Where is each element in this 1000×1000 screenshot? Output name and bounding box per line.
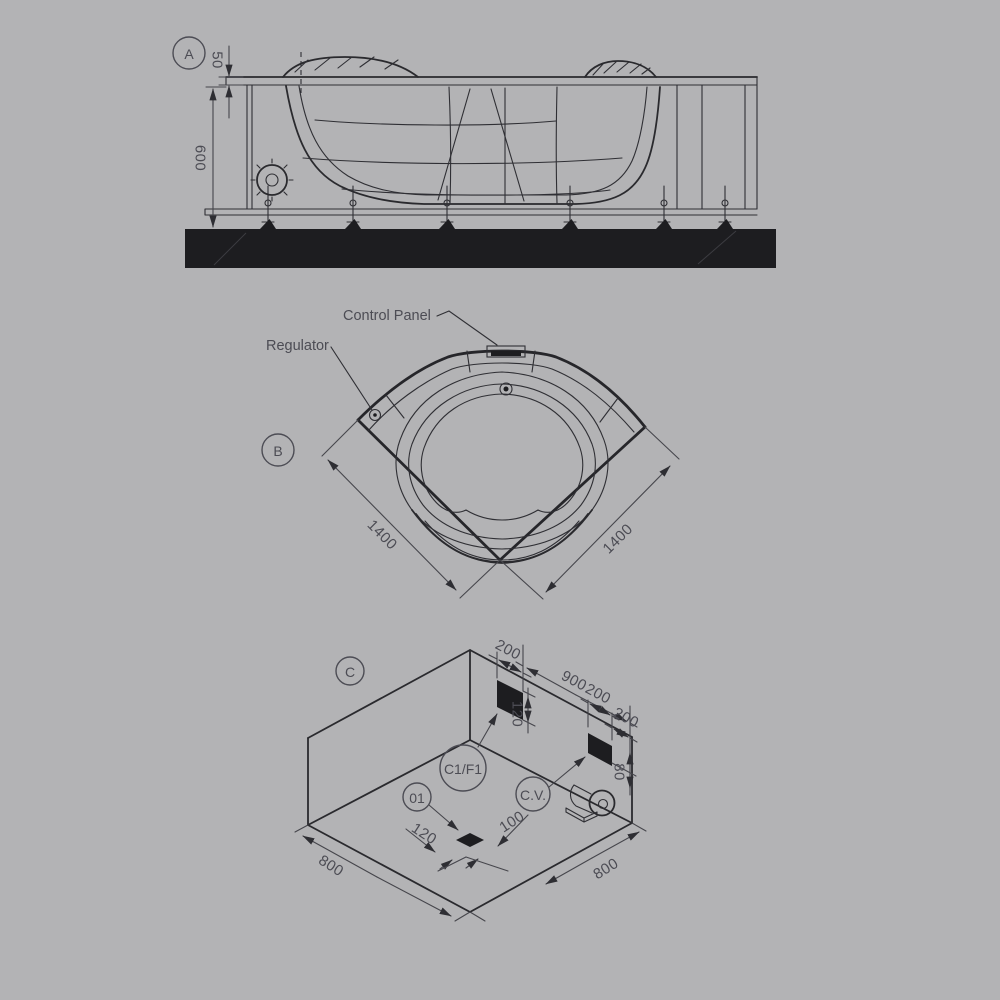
tub-deck (205, 52, 757, 215)
dim-120-drain-text: 120 (408, 820, 439, 849)
callout-01-text: 01 (409, 790, 425, 806)
control-panel-label: Control Panel (343, 308, 431, 324)
foot (439, 186, 455, 229)
drain (500, 383, 512, 395)
regulator-label: Regulator (266, 338, 329, 354)
callout-cv: C.V. (516, 757, 585, 811)
control-panel (487, 346, 525, 357)
dim-200-offset-text: 200 (582, 680, 613, 707)
view-c-isometric: C 200 (295, 636, 646, 921)
ground-bar (185, 229, 776, 268)
foot (345, 186, 361, 229)
tub-outer-rim (358, 351, 645, 427)
dimension-floor-right: 800 (470, 823, 646, 921)
pump-side-view (251, 159, 293, 201)
drain-extent-arrows (438, 857, 508, 871)
foot (562, 186, 578, 229)
tub-bowl-wireframe (286, 86, 660, 204)
view-c-label: C (345, 664, 355, 680)
tub-deck-inner-edge (368, 363, 634, 432)
view-b-label: B (273, 443, 282, 459)
dim-1400-left-text: 1400 (364, 517, 401, 554)
dim-600-text: 600 (192, 145, 209, 171)
dim-800-right-text: 800 (590, 855, 621, 883)
control-panel-leader (437, 311, 497, 345)
dim-80-text: 80 (611, 763, 628, 781)
view-b-plan: B (262, 308, 679, 599)
regulator-knob (370, 410, 381, 421)
dimension-total-height: 600 (192, 87, 227, 227)
dimension-drain-a: 120 (406, 820, 440, 852)
callout-c1f1: C1/F1 (440, 714, 497, 791)
callout-c1f1-text: C1/F1 (444, 761, 482, 777)
headrest-left (283, 57, 418, 77)
headrest-right (585, 61, 656, 77)
front-seat-band (412, 510, 592, 563)
dim-1400-right-text: 1400 (600, 521, 637, 558)
bowl-rim-lines (396, 372, 608, 549)
adjustable-feet (260, 186, 733, 229)
dimension-valve-width: 200 (605, 704, 642, 742)
foot (717, 186, 733, 229)
bathtub-technical-drawing: A (0, 0, 1000, 1000)
drawing-canvas: A (0, 0, 1000, 1000)
dim-120-panel-text: 120 (509, 701, 526, 727)
dimension-floor-left: 800 (295, 825, 470, 921)
dimension-drain-b: 100 (496, 808, 528, 846)
view-a-label: A (184, 46, 194, 62)
callout-cv-text: C.V. (520, 787, 546, 803)
view-a-elevation: A (173, 37, 776, 268)
dimension-valve-offset: 200 (581, 680, 619, 740)
dim-50-text: 50 (209, 51, 226, 69)
foot (656, 186, 672, 229)
valve-cutout (588, 733, 612, 766)
callout-01: 01 (403, 783, 458, 830)
deck-seams (386, 351, 618, 422)
regulator-leader (331, 347, 372, 410)
pump-isometric (566, 785, 615, 822)
dim-800-left-text: 800 (315, 852, 346, 880)
dim-100-drain-text: 100 (496, 808, 527, 837)
drain-cutout (456, 833, 484, 847)
